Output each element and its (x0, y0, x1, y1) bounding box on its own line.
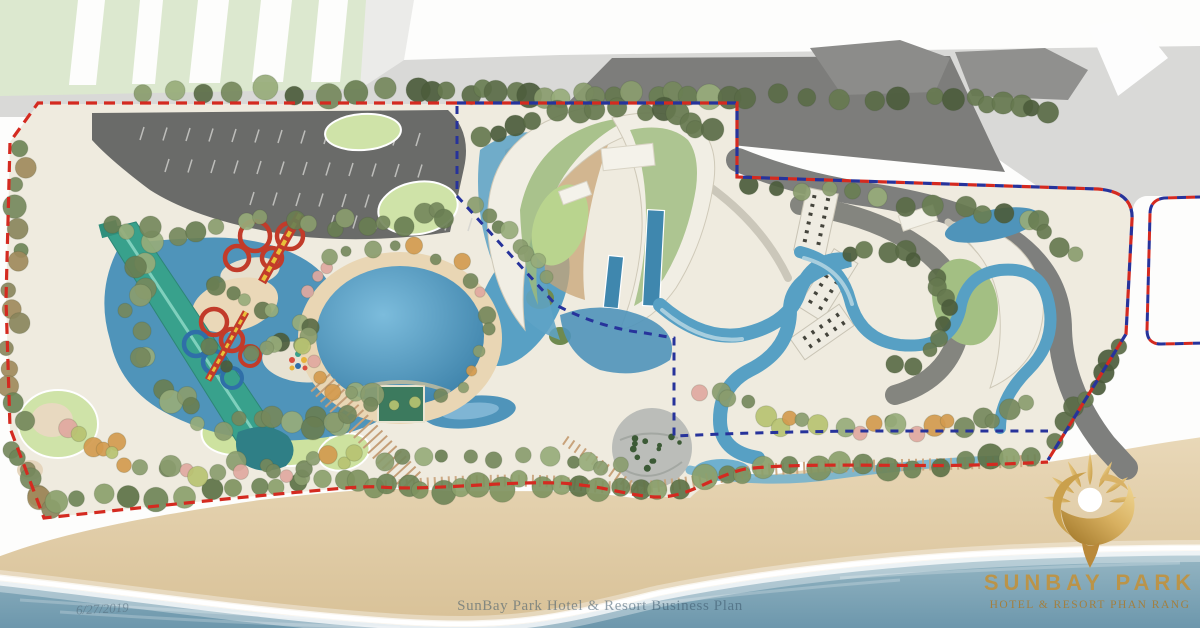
site-plan-illustration (0, 0, 1200, 628)
palm-plaza (612, 408, 692, 488)
master-plan-canvas: SunBay Park Hotel & Resort Business Plan… (0, 0, 1200, 628)
excluded-plot (1133, 196, 1200, 348)
pavilion (601, 143, 655, 170)
